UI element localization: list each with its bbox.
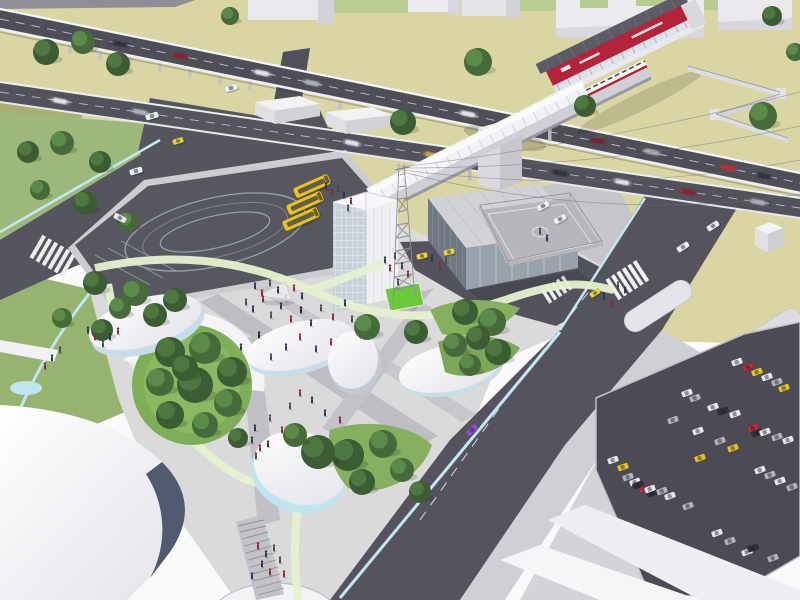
pedestrian-body [279,559,281,564]
pedestrian-body [299,392,301,397]
pedestrian-shadow [283,577,287,578]
top-lawn-strip [334,0,408,13]
tree-canopy-highlight [144,304,159,319]
pedestrian-shadow [339,423,343,424]
pedestrian-shadow [255,459,259,460]
pedestrian-head [259,444,261,446]
pedestrian-body [624,289,626,294]
tree-canopy-highlight [92,320,106,334]
pedestrian-shadow [270,318,274,319]
tree-canopy-highlight [410,482,424,496]
pedestrian-body [259,447,261,452]
pedestrian-body [407,273,409,278]
tree-canopy-highlight [350,470,366,486]
pedestrian-shadow [269,421,273,422]
pedestrian-body [293,287,295,292]
pedestrian-shadow [331,195,335,196]
pedestrian-shadow [315,352,319,353]
pedestrian-body [300,309,302,314]
pedestrian-shadow [279,563,283,564]
pedestrian-head [44,362,46,364]
pedestrian-shadow [617,288,621,289]
pedestrian-shadow [251,443,255,444]
pedestrian-body [267,443,269,448]
pedestrian-body [262,298,264,303]
pedestrian-head [431,254,433,256]
tree-canopy-highlight [460,355,474,369]
pedestrian-body [281,429,283,434]
pedestrian-body [285,346,287,351]
pedestrian-head [285,294,287,296]
tree-canopy-highlight [219,358,238,377]
pedestrian-body [277,289,279,294]
pedestrian-body [251,575,253,580]
pedestrian-head [51,354,53,356]
pedestrian-shadow [311,403,315,404]
pedestrian-body [311,399,313,404]
tree-canopy-highlight [486,340,502,356]
pedestrian-body [258,334,260,339]
tree-canopy-highlight [18,142,32,156]
pedestrian-shadow [539,234,543,235]
pedestrian-shadow [324,416,328,417]
pedestrian-body [270,356,272,361]
tree-canopy-highlight [444,334,459,349]
pedestrian-shadow [337,191,341,192]
pedestrian-head [315,345,317,347]
pedestrian-head [94,333,96,335]
tree-canopy-highlight [157,402,174,419]
pedestrian-shadow [285,350,289,351]
tree-canopy-highlight [575,96,589,110]
pedestrian-shadow [262,302,266,303]
pedestrian-shadow [299,340,303,341]
pedestrian-shadow [273,551,277,552]
pedestrian-head [252,305,254,307]
pedestrian-body [546,237,548,242]
pedestrian-head [301,292,303,294]
pedestrian-body [87,329,89,334]
pedestrian-head [281,426,283,428]
pedestrian-shadow [603,299,607,300]
pedestrian-body [273,547,275,552]
pedestrian-shadow [269,286,273,287]
pedestrian-body [439,265,441,270]
pedestrian-shadow [344,306,348,307]
pedestrian-shadow [301,299,305,300]
pedestrian-shadow [624,293,628,294]
pedestrian-shadow [611,306,615,307]
pedestrian-body [539,230,541,235]
pedestrian-head [624,286,626,288]
pedestrian-shadow [94,340,98,341]
pedestrian-shadow [252,312,256,313]
pedestrian-head [325,182,327,184]
tree-canopy-highlight [72,31,87,46]
pedestrian-shadow [293,291,297,292]
pond [10,381,42,395]
tree-canopy-highlight [107,53,122,68]
pedestrian-body [603,295,605,300]
pedestrian-head [270,311,272,313]
tree-canopy-highlight [391,459,406,474]
pedestrian-head [240,343,242,345]
pedestrian-head [539,227,541,229]
tree-canopy-highlight [51,132,66,147]
pedestrian-head [109,333,111,335]
pedestrian-head [270,353,272,355]
pedestrian-head [261,289,263,291]
pedestrian-shadow [258,338,262,339]
pedestrian-shadow [350,204,354,205]
tree-canopy-highlight [405,321,420,336]
tree-canopy-highlight [193,413,209,429]
pedestrian-shadow [267,447,271,448]
pedestrian-body [59,349,61,354]
pedestrian-shadow [343,198,347,199]
pedestrian-body [299,336,301,341]
pedestrian-head [257,542,259,544]
pedestrian-head [254,282,256,284]
pedestrian-head [603,292,605,294]
pedestrian-body [401,265,403,270]
pedestrian-head [261,560,263,562]
pedestrian-body [269,417,271,422]
pedestrian-body [611,302,613,307]
pedestrian-body [117,330,119,335]
pedestrian-head [283,570,285,572]
pedestrian-shadow [261,567,265,568]
pedestrian-body [350,200,352,205]
pedestrian-shadow [401,269,405,270]
tree-canopy-highlight [157,338,176,357]
pedestrian-body [257,545,259,550]
pedestrian-head [273,544,275,546]
pedestrian-shadow [280,309,284,310]
pedestrian-body [109,336,111,341]
pedestrian-head [401,262,403,264]
pedestrian-head [331,188,333,190]
pedestrian-shadow [285,301,289,302]
pedestrian-head [255,452,257,454]
pedestrian-head [343,191,345,193]
pedestrian-head [324,409,326,411]
pedestrian-shadow [281,433,285,434]
pedestrian-head [332,313,334,315]
pedestrian-shadow [245,305,249,306]
pedestrian-head [439,262,441,264]
pedestrian-head [280,302,282,304]
pedestrian-head [285,343,287,345]
pedestrian-body [310,322,312,327]
pedestrian-body [270,314,272,319]
pedestrian-body [617,284,619,289]
pedestrian-head [546,234,548,236]
pedestrian-head [384,256,386,258]
pedestrian-body [255,455,257,460]
pedestrian-head [269,279,271,281]
pedestrian-body [269,571,271,576]
pedestrian-shadow [251,579,255,580]
pedestrian-body [44,365,46,370]
tree-canopy-highlight [763,7,775,19]
pedestrian-body [330,341,332,346]
pedestrian-shadow [257,549,261,550]
tower-glass-facade [333,192,366,314]
pedestrian-head [87,326,89,328]
pedestrian-body [343,194,345,199]
pedestrian-body [344,302,346,307]
pedestrian-body [269,282,271,287]
pedestrian-body [254,427,256,432]
pedestrian-shadow [59,353,63,354]
pedestrian-head [310,319,312,321]
pedestrian-shadow [277,293,281,294]
pedestrian-shadow [439,269,443,270]
tree-canopy-highlight [391,110,407,126]
pedestrian-shadow [300,313,304,314]
pedestrian-head [397,278,399,280]
pedestrian-body [252,308,254,313]
tree-canopy-highlight [215,390,232,407]
pedestrian-body [285,297,287,302]
pedestrian-head [394,252,396,254]
pedestrian-head [293,284,295,286]
pedestrian-shadow [259,451,263,452]
tree-canopy-highlight [31,181,43,193]
pedestrian-head [300,306,302,308]
pedestrian-body [261,563,263,568]
tree-canopy-highlight [222,8,233,19]
pedestrian-head [102,340,104,342]
architectural-rendering [0,0,800,600]
tree-canopy-highlight [284,424,299,439]
pedestrian-body [320,307,322,312]
pedestrian-head [407,270,409,272]
pedestrian-body [331,191,333,196]
pedestrian-head [350,197,352,199]
pedestrian-shadow [254,289,258,290]
pedestrian-body [251,439,253,444]
pedestrian-head [277,286,279,288]
tree-canopy-highlight [173,356,189,372]
pedestrian-head [254,424,256,426]
pedestrian-head [311,396,313,398]
pedestrian-head [267,440,269,442]
pedestrian-shadow [431,261,435,262]
pedestrian-head [279,556,281,558]
pedestrian-shadow [51,361,55,362]
pedestrian-shadow [109,340,113,341]
pedestrian-shadow [102,347,106,348]
pedestrian-head [117,327,119,329]
tree-canopy-highlight [750,103,767,120]
pedestrian-shadow [347,211,351,212]
pedestrian-head [320,304,322,306]
pedestrian-head [265,550,267,552]
pedestrian-head [389,264,391,266]
pedestrian-body [283,573,285,578]
pedestrian-body [389,267,391,272]
tree-canopy-highlight [53,309,65,321]
pedestrian-body [94,336,96,341]
pedestrian-shadow [394,259,398,260]
pedestrian-body [347,207,349,212]
pedestrian-body [240,346,242,351]
pedestrian-head [245,298,247,300]
pedestrian-shadow [269,575,273,576]
pedestrian-body [351,318,353,323]
tree-canopy-highlight [370,431,387,448]
pedestrian-head [251,572,253,574]
pedestrian-shadow [397,285,401,286]
pedestrian-head [351,315,353,317]
pedestrian-shadow [546,241,550,242]
pedestrian-head [344,299,346,301]
tree-canopy-highlight [229,429,241,441]
pedestrian-body [102,343,104,348]
pedestrian-body [445,259,447,264]
pedestrian-head [262,295,264,297]
pedestrian-shadow [265,557,269,558]
pedestrian-shadow [445,263,449,264]
pedestrian-head [330,338,332,340]
tree-canopy-highlight [74,192,89,207]
pedestrian-shadow [330,345,334,346]
tree-canopy-highlight [147,369,164,386]
tree-canopy-highlight [110,298,124,312]
pedestrian-body [325,185,327,190]
tree-canopy-highlight [453,300,469,316]
pedestrian-shadow [289,409,293,410]
tree-canopy-highlight [84,272,99,287]
pedestrian-body [280,305,282,310]
pedestrian-head [299,389,301,391]
pedestrian-body [394,255,396,260]
tree-canopy-highlight [355,315,371,331]
tree-canopy-highlight [164,289,179,304]
pedestrian-head [289,402,291,404]
pedestrian-body [289,405,291,410]
pedestrian-shadow [254,431,258,432]
tree-canopy-highlight [479,309,496,326]
pedestrian-head [258,331,260,333]
tree-canopy-highlight [467,327,482,342]
pedestrian-head [251,436,253,438]
pedestrian-shadow [240,350,244,351]
pedestrian-shadow [117,334,121,335]
tree-canopy-highlight [191,333,211,353]
pedestrian-head [347,204,349,206]
pedestrian-head [617,281,619,283]
tree-canopy-highlight [123,281,139,297]
pedestrian-body [337,187,339,192]
pedestrian-body [290,318,292,323]
pedestrian-head [59,346,61,348]
pedestrian-shadow [325,189,329,190]
pedestrian-shadow [332,320,336,321]
pedestrian-shadow [351,322,355,323]
tree-canopy-highlight [334,440,354,460]
tree-canopy-highlight [34,40,50,56]
pedestrian-head [611,299,613,301]
pedestrian-shadow [320,311,324,312]
pedestrian-shadow [407,277,411,278]
pedestrian-head [290,315,292,317]
pedestrian-body [51,357,53,362]
pedestrian-head [337,184,339,186]
pedestrian-shadow [87,333,91,334]
rendering-stage [0,0,800,600]
pedestrian-shadow [310,326,314,327]
pedestrian-body [315,348,317,353]
pedestrian-body [384,259,386,264]
apartment-block-3 [462,0,520,18]
tree-canopy-highlight [787,44,798,55]
pedestrian-body [332,316,334,321]
pedestrian-body [339,419,341,424]
pedestrian-shadow [270,360,274,361]
pedestrian-head [299,333,301,335]
pedestrian-head [269,414,271,416]
pedestrian-body [324,412,326,417]
pedestrian-body [245,301,247,306]
pedestrian-shadow [44,369,48,370]
pedestrian-body [254,285,256,290]
pedestrian-shadow [389,271,393,272]
top-lawn-strip-2 [520,0,558,11]
tree-canopy-highlight [90,152,104,166]
pedestrian-body [265,553,267,558]
pedestrian-body [301,295,303,300]
pedestrian-body [397,281,399,286]
pedestrian-shadow [384,263,388,264]
pedestrian-shadow [290,322,294,323]
pedestrian-head [445,256,447,258]
tree-canopy-highlight [465,49,482,66]
pedestrian-shadow [299,396,303,397]
pedestrian-head [269,568,271,570]
pedestrian-head [339,416,341,418]
pedestrian-body [431,257,433,262]
